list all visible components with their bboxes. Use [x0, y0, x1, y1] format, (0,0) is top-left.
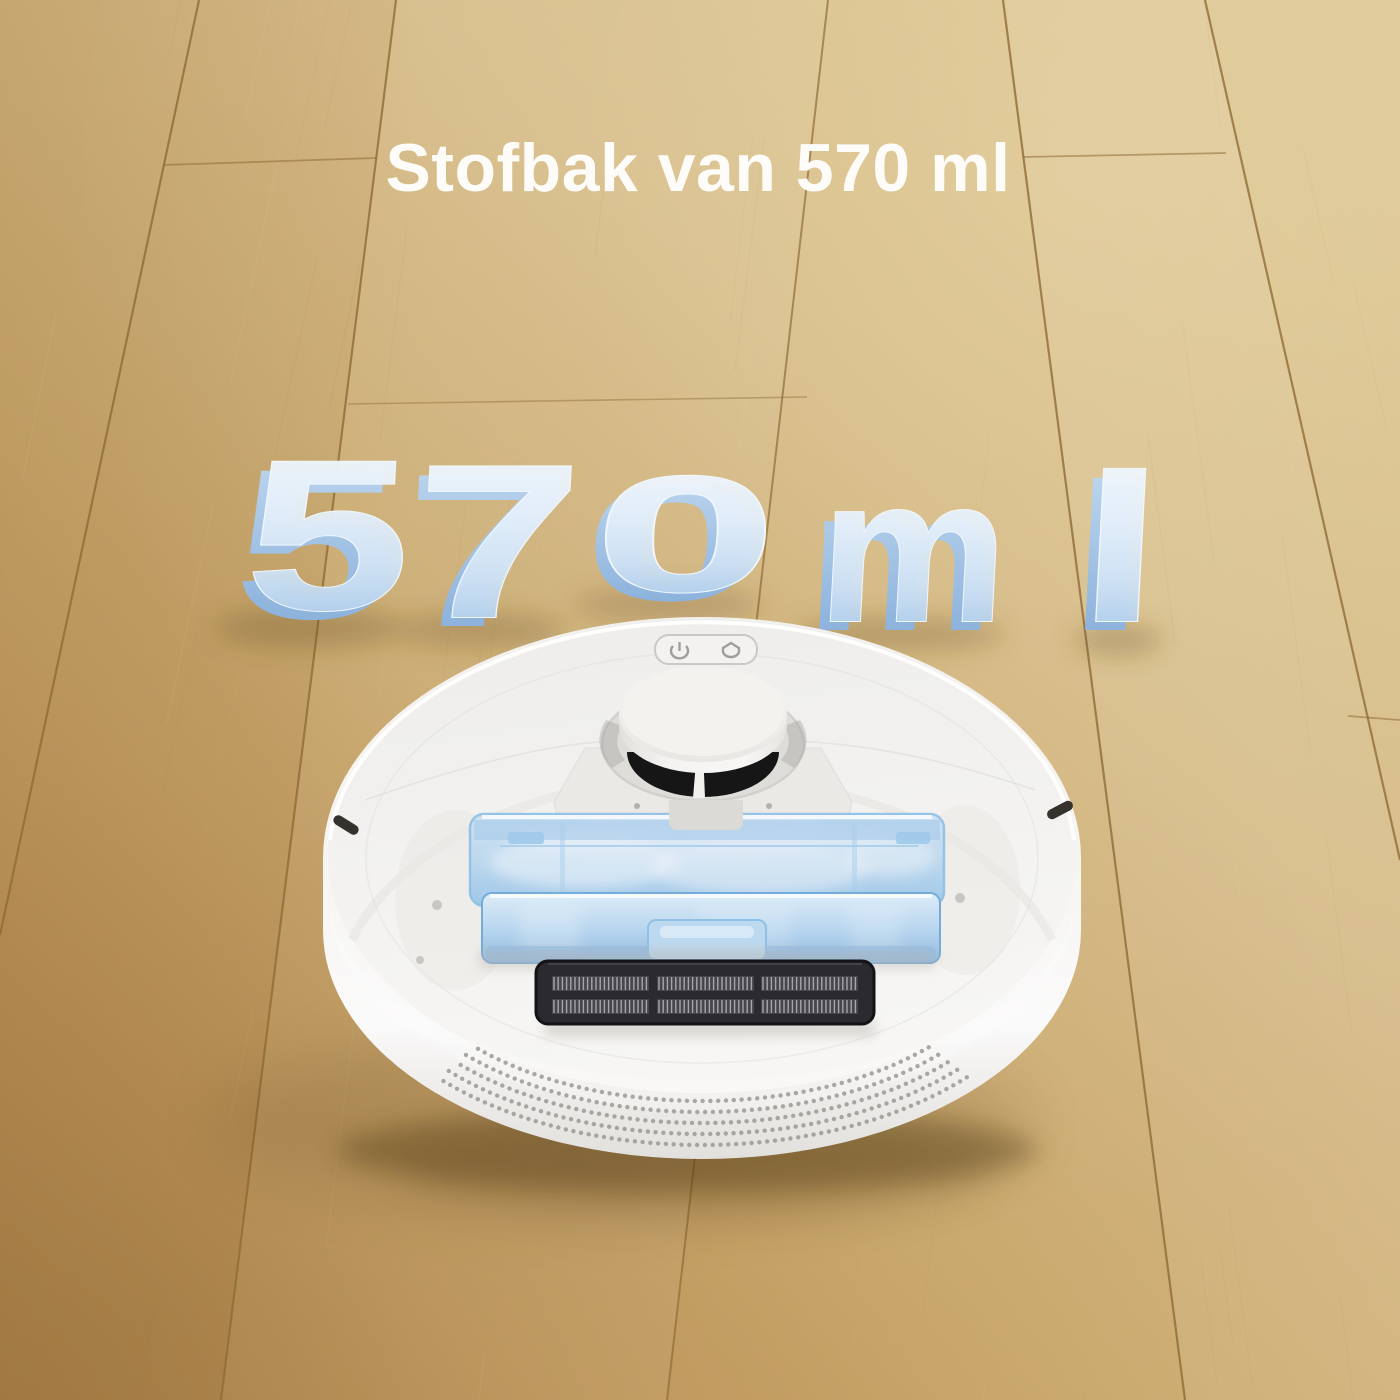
svg-text:0: 0: [589, 442, 782, 626]
svg-text:Stofbak van 570 ml: Stofbak van 570 ml: [385, 130, 1010, 206]
svg-text:5: 5: [241, 415, 418, 655]
svg-text:7: 7: [408, 419, 586, 664]
svg-text:m: m: [814, 436, 1015, 665]
svg-text:l: l: [1074, 432, 1168, 666]
